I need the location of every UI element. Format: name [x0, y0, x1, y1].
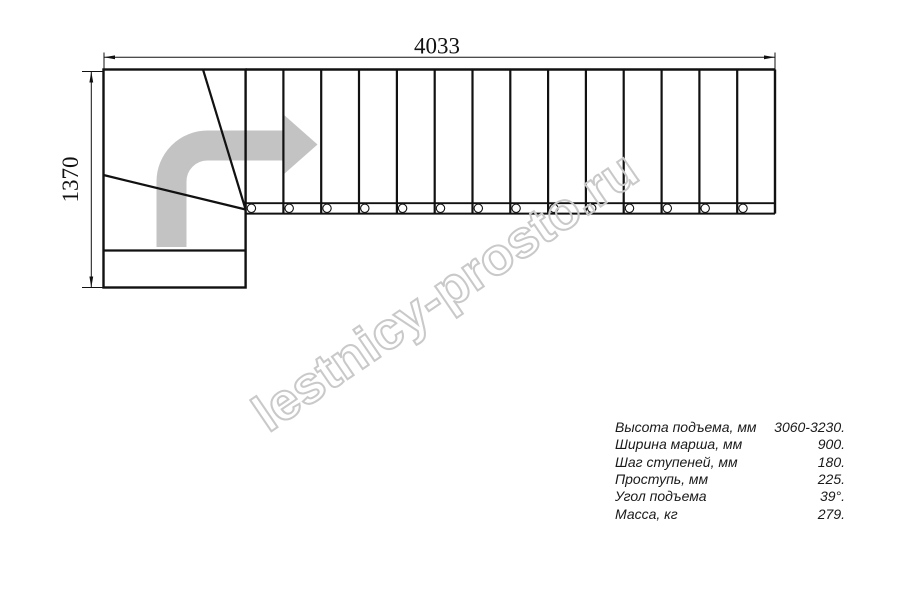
spec-row-step-rise: Шаг ступеней, мм 180.	[615, 454, 845, 471]
direction-arrow-head	[284, 115, 318, 175]
spec-row-tread: Проступь, мм 225.	[615, 471, 845, 488]
spec-label: Проступь, мм	[615, 471, 708, 488]
width-arrow-left	[104, 55, 115, 59]
straight-flight-treads	[283, 70, 737, 214]
spec-row-mass: Масса, кг 279.	[615, 506, 845, 523]
spec-label: Масса, кг	[615, 506, 678, 523]
spec-value: 180.	[818, 454, 845, 471]
watermark: lestnicy-prosto.ru	[242, 141, 648, 444]
spec-value: 900.	[818, 436, 845, 453]
spec-label: Угол подъема	[615, 488, 707, 505]
height-dimension: 1370	[58, 72, 104, 288]
spec-value: 279.	[818, 506, 845, 523]
straight-flight	[246, 70, 775, 214]
spec-label: Ширина марша, мм	[615, 436, 742, 453]
spec-value: 3060-3230.	[774, 419, 845, 436]
width-dimension: 4033	[104, 34, 775, 70]
height-dimension-value: 1370	[58, 157, 83, 203]
spec-value: 39°.	[820, 488, 845, 505]
spec-row-flight-width: Ширина марша, мм 900.	[615, 436, 845, 453]
spec-row-angle: Угол подъема 39°.	[615, 488, 845, 505]
height-arrow-bottom	[89, 277, 93, 288]
spec-label: Шаг ступеней, мм	[615, 454, 738, 471]
width-arrow-right	[764, 55, 775, 59]
height-arrow-top	[89, 72, 93, 83]
spec-value: 225.	[818, 471, 845, 488]
spec-row-height: Высота подъема, мм 3060-3230.	[615, 419, 845, 436]
specs-table: Высота подъема, мм 3060-3230. Ширина мар…	[615, 419, 845, 523]
staircase-outline	[104, 70, 776, 288]
stair-plan-page: 4033 1370 lestnicy-prosto.ru Высота подъ…	[0, 0, 900, 600]
spec-label: Высота подъема, мм	[615, 419, 757, 436]
width-dimension-value: 4033	[414, 34, 460, 59]
